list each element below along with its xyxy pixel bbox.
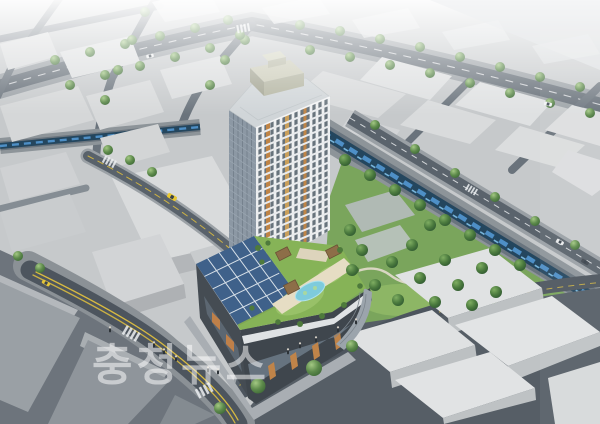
watermark-text: 충청뉴스 — [92, 340, 270, 391]
scene-svg: 충청뉴스 — [0, 0, 600, 424]
rendering-image: 충청뉴스 — [0, 0, 600, 424]
